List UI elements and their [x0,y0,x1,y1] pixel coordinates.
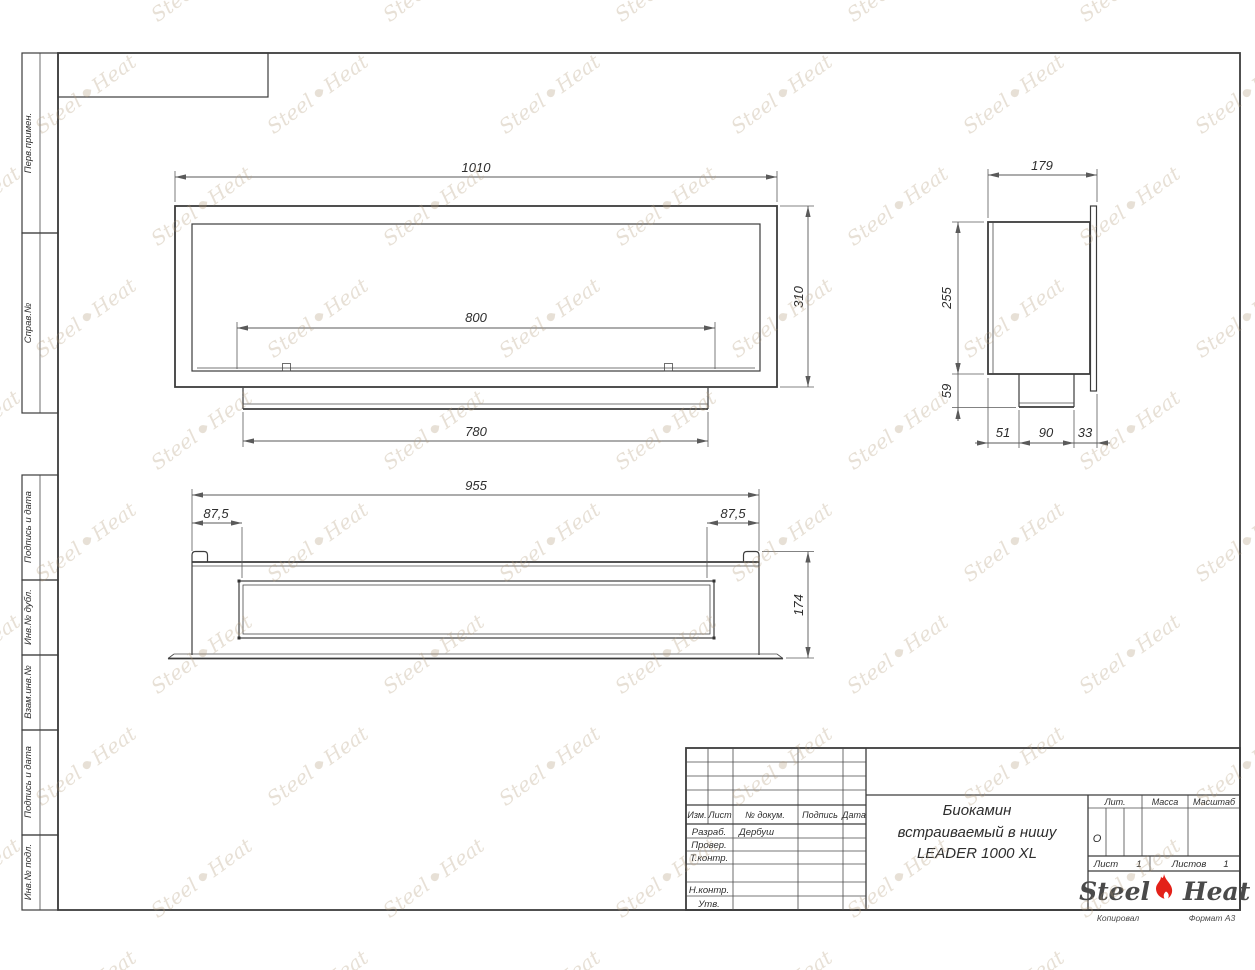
sidebar-label: Инв.№ подл. [23,844,34,900]
front-view [175,206,777,409]
dim-burner-width: 800 [465,310,487,325]
mount-hook-right [744,552,760,563]
dim-tray-width: 780 [465,424,487,439]
footer-notes: Копировал Формат А3 [1097,913,1236,923]
dim-side-seg-left: 51 [996,425,1010,440]
dim-side-height: 255 [939,286,954,309]
tb-scale-label: Масштаб [1193,797,1236,807]
dim-side-seg-mid: 90 [1039,425,1054,440]
mount-hook-left [192,552,208,563]
copied-note: Копировал [1097,913,1139,923]
sidebar-label: Подпись и дата [23,491,34,563]
sidebar-label: Инв.№ дубл. [23,589,34,645]
logo-word-steel: Steel [1079,877,1150,906]
sidebar-label: Справ.№ [23,303,34,344]
product-title-line1: Биокамин [943,802,1012,819]
top-reference-box [58,53,268,97]
plan-view-dimensions: 955 87,5 87,5 174 [192,478,814,658]
product-title-line3: LEADER 1000 XL [917,845,1037,862]
tb-sheets-label: Листов [1171,859,1207,870]
format-note: Формат А3 [1189,913,1236,923]
sidebar-label: Взам.инв.№ [23,665,34,718]
side-view-dimensions: 179 255 59 51 90 33 [939,158,1110,448]
tb-lit-value: О [1093,833,1102,845]
sidebar-box-podpis-data-1: Подпись и дата [22,475,58,580]
sheet-frame [58,53,1240,910]
tb-lit-label: Лит. [1103,797,1125,807]
tb-sheet-value: 1 [1136,859,1141,870]
tb-row-tkontr: Т.контр. [690,853,728,864]
mount-flange [1091,206,1097,391]
tb-col-list: Лист [707,810,732,820]
tb-razrab-name: Дербуш [738,827,774,838]
sidebar-label: Подпись и дата [23,746,34,818]
dim-plan-offset-right: 87,5 [720,506,746,521]
tb-row-utv: Утв. [697,899,720,910]
sidebar-box-inv-podl: Инв.№ подл. [22,835,58,910]
tb-mass-label: Масса [1152,797,1179,807]
logo-word-heat: Heat [1182,877,1251,906]
dim-side-lower-height: 59 [939,384,954,398]
tb-sheets-value: 1 [1223,859,1228,870]
steelheat-logo: Steel Heat [1079,874,1251,906]
flame-icon [1156,874,1172,899]
tb-row-nkontr: Н.контр. [689,885,729,896]
dim-side-seg-right: 33 [1078,425,1093,440]
burner-tab-right [665,364,673,372]
sidebar-box-vzam-inv: Взам.инв.№ [22,655,58,730]
tb-row-razrab: Разраб. [692,827,726,838]
sidebar-columns: Перв.примен. Справ.№ Подпись и дата Инв.… [22,53,58,910]
product-title-line2: встраиваемый в нишу [898,824,1058,841]
plan-view [168,552,783,659]
tb-row-prover: Провер. [691,840,726,851]
dim-plan-depth: 174 [791,594,806,616]
tb-col-izm: Изм. [687,810,706,820]
burner-tab-left [283,364,291,372]
burner-opening [239,581,714,638]
dim-plan-offset-left: 87,5 [203,506,229,521]
dim-front-height: 310 [791,285,806,307]
drawing-canvas: Перв.примен. Справ.№ Подпись и дата Инв.… [0,0,1255,970]
sidebar-label: Перв.примен. [23,113,34,174]
sidebar-box-sprav-no: Справ.№ [22,233,58,413]
tb-sheet-label: Лист [1093,859,1119,870]
side-view [988,206,1097,407]
dim-front-width: 1010 [462,160,492,175]
tb-col-data: Дата [841,810,866,820]
sidebar-box-podpis-data-2: Подпись и дата [22,730,58,835]
sidebar-box-perv-primen: Перв.примен. [22,53,58,233]
dim-side-depth: 179 [1031,158,1053,173]
drawing-sheet: Перв.примен. Справ.№ Подпись и дата Инв.… [0,0,1255,970]
tb-col-podpis: Подпись [802,810,838,820]
sidebar-box-inv-dubl: Инв.№ дубл. [22,580,58,655]
dim-plan-width: 955 [465,478,487,493]
tb-col-docnum: № докум. [745,810,785,820]
